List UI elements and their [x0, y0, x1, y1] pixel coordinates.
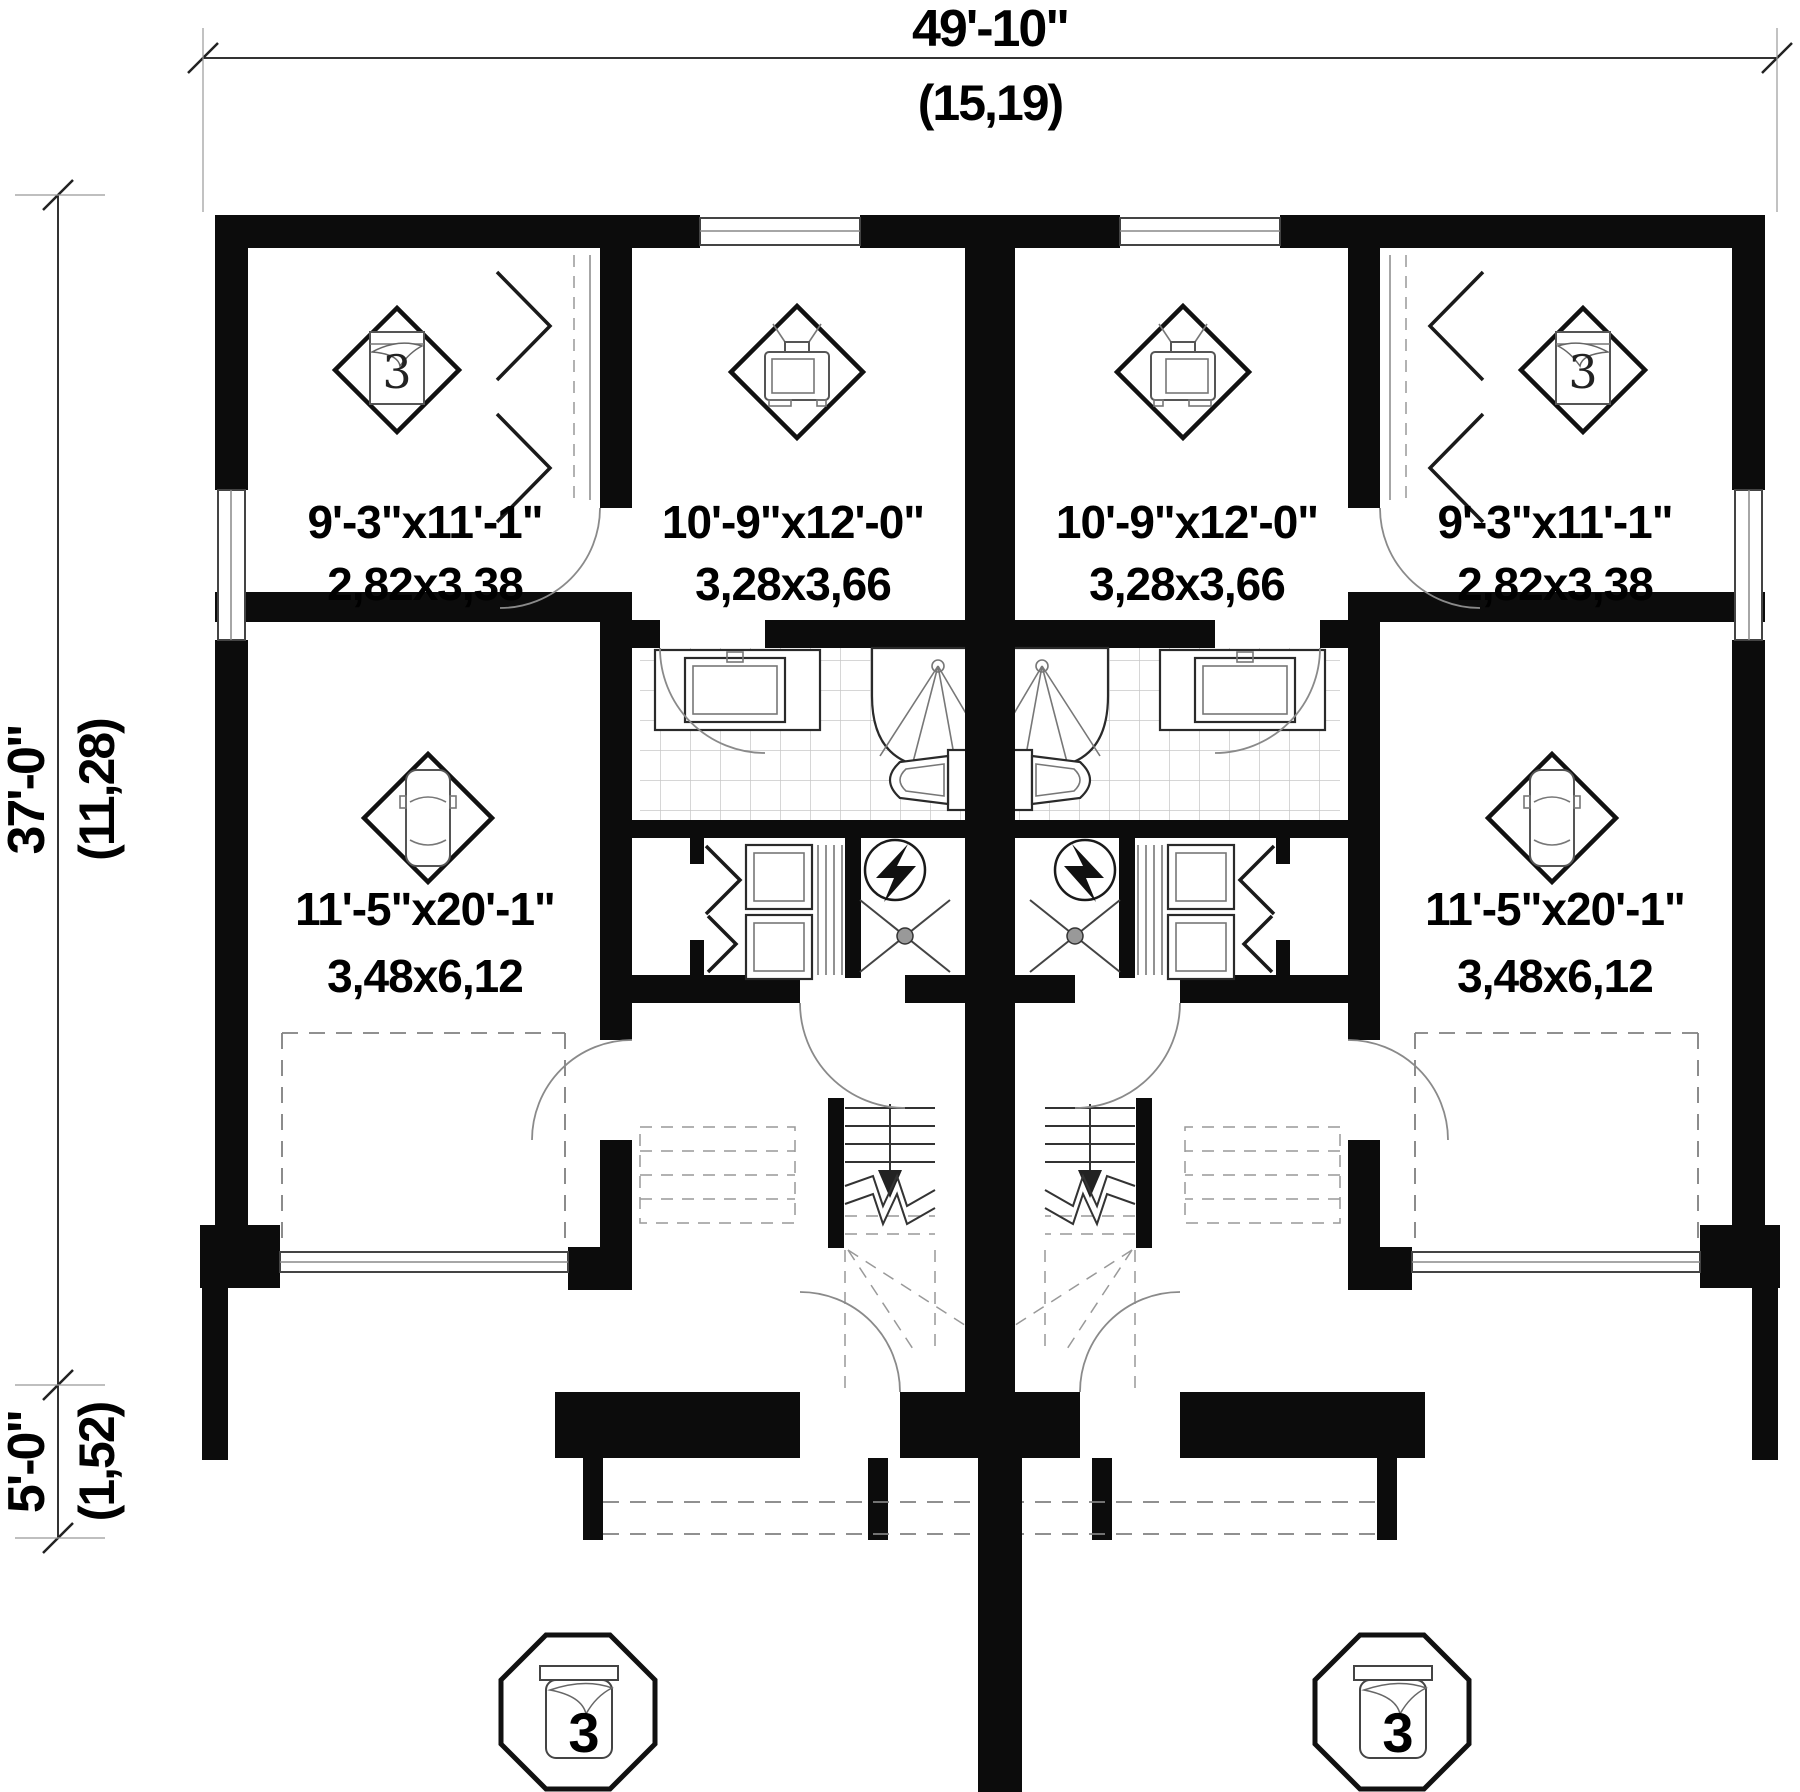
- car-icon: [364, 754, 492, 882]
- living-right-size-imperial: 10'-9"x12'-0": [1056, 496, 1318, 548]
- unit-badge-left: 3: [501, 1635, 655, 1789]
- floor-plan-page: 49'-10" (15,19) 37'-0" (11,28) 5'-0" (1,…: [0, 0, 1800, 1792]
- bedroom-right-icon-number: 3: [1568, 345, 1597, 399]
- car-icon: [1488, 754, 1616, 882]
- stairs-above-dashed: [1185, 1127, 1340, 1223]
- unit-geometry-right: [965, 215, 1780, 1540]
- closet: [1390, 255, 1483, 522]
- unit-geometry-left: [200, 215, 1015, 1540]
- bedroom-right-size-metric: 2,82x3,38: [1457, 558, 1653, 610]
- bathroom: [990, 648, 1340, 820]
- dryer: [746, 915, 812, 979]
- bedroom-right-size-imperial: 9'-3"x11'-1": [1437, 496, 1672, 548]
- washer: [746, 845, 812, 909]
- dryer: [1168, 915, 1234, 979]
- bedroom-left-size-metric: 2,82x3,38: [327, 558, 523, 610]
- stairs-above-dashed: [640, 1127, 795, 1223]
- bedroom-left-size-imperial: 9'-3"x11'-1": [307, 496, 542, 548]
- garage-door: [280, 1252, 568, 1272]
- dim-width-metric: (15,19): [918, 75, 1063, 131]
- sink-vanity: [655, 650, 820, 730]
- laundry: [706, 845, 842, 979]
- dim-porch-metric: (1,52): [69, 1402, 125, 1521]
- bedroom-left-icon-number: 3: [382, 345, 411, 399]
- dim-depth-metric: (11,28): [69, 719, 125, 861]
- window-side: [218, 490, 245, 640]
- dim-depth-imperial: 37'-0": [0, 725, 56, 854]
- parking-stall-dashed: [1415, 1033, 1698, 1247]
- living-right-size-metric: 3,28x3,66: [1089, 558, 1285, 610]
- bathroom: [640, 648, 990, 820]
- closet: [497, 255, 590, 522]
- window-top: [1120, 218, 1280, 245]
- party-wall: [965, 215, 1022, 1792]
- garage-left-size-metric: 3,48x6,12: [327, 950, 523, 1002]
- dimension-top: 49'-10" (15,19): [188, 0, 1792, 212]
- badge-right-number: 3: [1382, 1701, 1413, 1764]
- floor-drain-icon: [860, 900, 950, 972]
- badge-left-number: 3: [568, 1701, 599, 1764]
- living-left-size-imperial: 10'-9"x12'-0": [662, 496, 924, 548]
- tv-icon: [731, 306, 863, 438]
- garage-door: [1412, 1252, 1700, 1272]
- stairs: [995, 1104, 1340, 1388]
- floor-drain-icon: [1030, 900, 1120, 972]
- window-top: [700, 218, 860, 245]
- washer: [1168, 845, 1234, 909]
- dimension-left: 37'-0" (11,28) 5'-0" (1,52): [0, 180, 125, 1553]
- unit-badge-right: 3: [1315, 1635, 1469, 1789]
- stairs: [640, 1104, 985, 1388]
- sink-vanity: [1160, 650, 1325, 730]
- garage-left-size-imperial: 11'-5"x20'-1": [295, 883, 555, 935]
- window-side: [1735, 490, 1762, 640]
- parking-stall-dashed: [282, 1033, 565, 1247]
- floor-plan-drawing: 49'-10" (15,19) 37'-0" (11,28) 5'-0" (1,…: [0, 0, 1800, 1792]
- garage-right-size-imperial: 11'-5"x20'-1": [1425, 883, 1685, 935]
- living-left-size-metric: 3,28x3,66: [695, 558, 891, 610]
- garage-right-size-metric: 3,48x6,12: [1457, 950, 1653, 1002]
- dim-width-imperial: 49'-10": [912, 0, 1068, 58]
- electrical-panel-icon: [865, 840, 925, 902]
- tv-icon: [1117, 306, 1249, 438]
- electrical-panel-icon: [1055, 840, 1115, 902]
- dim-porch-imperial: 5'-0": [0, 1411, 56, 1513]
- laundry: [1138, 845, 1274, 979]
